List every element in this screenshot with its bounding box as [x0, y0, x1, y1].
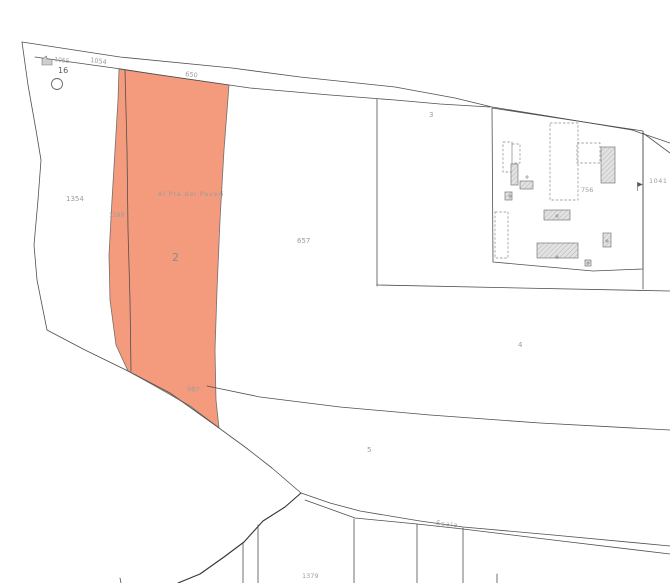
parcel-label-1041: 1041 — [649, 177, 668, 185]
building-footprint — [520, 181, 533, 189]
dashed-building-outline — [512, 144, 520, 163]
parcel-label-756: 756 — [581, 186, 593, 194]
survey-marker-icon — [638, 183, 643, 192]
parcel-label-1379: 1379 — [302, 572, 319, 580]
parcel-label-5: 5 — [367, 446, 371, 454]
road-upper-edge — [301, 493, 670, 546]
building-footprint — [601, 147, 615, 183]
dashed-building-outline — [495, 212, 508, 258]
parcel-label-1199: 1199 — [109, 212, 124, 219]
dashed-building-outline — [577, 143, 600, 163]
parcel-label-987: 987 — [187, 385, 200, 394]
bottom-edge-tick — [120, 578, 121, 583]
dashed-building-outline — [550, 123, 578, 200]
boundary-tip-to-road — [219, 428, 301, 493]
parcel-label-1055: 1055 — [54, 56, 70, 65]
map-canvas[interactable]: 1055 16 1054 650 1354 1199 2 Al Pra del … — [0, 0, 670, 583]
parcel-4-5-divider — [207, 386, 670, 430]
circle-marker — [52, 79, 63, 90]
right-strip-top-line — [643, 133, 670, 153]
parcel-label-657: 657 — [297, 237, 310, 245]
tick-cross — [525, 175, 529, 179]
parcel-label-650: 650 — [185, 70, 198, 79]
parcel-3-4-divider — [377, 285, 670, 291]
road-name-label: Scala — [436, 519, 459, 529]
small-building-icon — [42, 56, 52, 65]
parcel-label-1354: 1354 — [66, 195, 84, 203]
selected-parcel-number: 2 — [172, 251, 179, 264]
parcel-label-4: 4 — [518, 341, 523, 349]
left-outer-boundary — [22, 42, 47, 330]
dashed-building-outline — [503, 142, 512, 172]
building-footprint — [537, 243, 578, 258]
cadastral-map-svg[interactable]: 1055 16 1054 650 1354 1199 2 Al Pra del … — [0, 0, 670, 583]
road-lower-edge — [305, 500, 670, 554]
selected-parcel-polygon[interactable] — [109, 69, 229, 428]
parcel-label-3: 3 — [429, 111, 433, 119]
building-footprint — [511, 164, 518, 185]
toponym-label: Al Pra del Paveri — [158, 190, 224, 198]
bottom-left-boundary-curve — [178, 493, 301, 583]
point-label-16: 16 — [58, 66, 68, 75]
